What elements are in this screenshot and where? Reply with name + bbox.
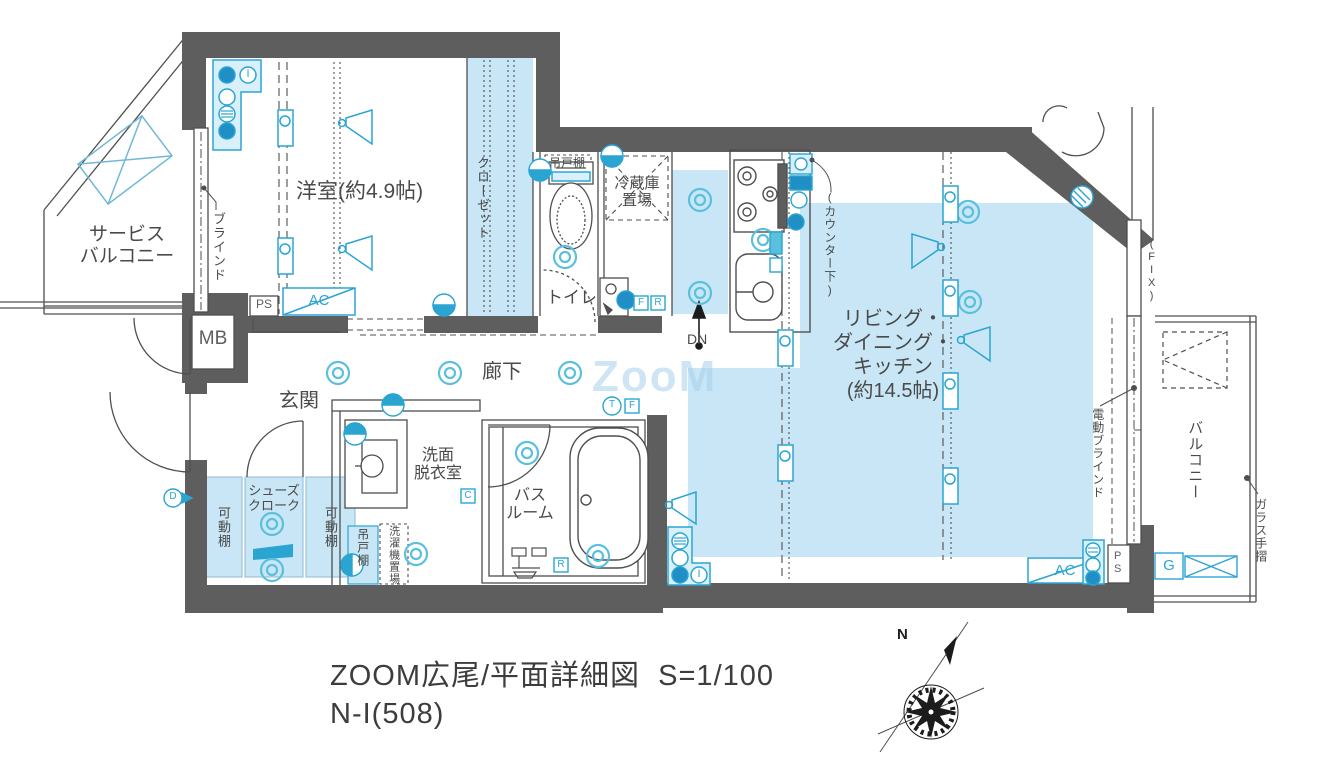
label-ac-top: AC bbox=[283, 292, 355, 309]
icon-letter-r-bath: R bbox=[554, 559, 568, 571]
room-label-bathroom: バス ルーム bbox=[496, 487, 564, 524]
icon-letter-c-bath: C bbox=[461, 490, 475, 502]
icon-letter-t-corridor: T bbox=[605, 399, 619, 411]
north-label: N bbox=[897, 626, 908, 643]
label-electric-blind: 電動ブラインド bbox=[1090, 408, 1104, 499]
label-fix-window: (FIX) bbox=[1145, 238, 1158, 303]
room-label-western: 洋室(約4.9帖) bbox=[296, 180, 423, 204]
label-ps-top: PS bbox=[250, 298, 278, 312]
drawing-title: ZOOM広尾/平面詳細図 S=1/100 bbox=[330, 660, 774, 693]
icon-letter-f-corridor: F bbox=[625, 400, 639, 412]
label-movable-shelf-right: 可動棚 bbox=[322, 506, 337, 548]
room-label-balcony: バルコニー bbox=[1186, 420, 1203, 500]
icon-letter-f-toilet: F bbox=[634, 297, 648, 309]
label-dn: DN bbox=[687, 331, 707, 347]
shower-fixture bbox=[512, 548, 546, 578]
label-ps-bottom: PS bbox=[1111, 550, 1124, 576]
icon-letter-i-top: I bbox=[241, 68, 255, 81]
icon-letter-r-toilet: R bbox=[651, 297, 665, 309]
service-balcony-outline bbox=[0, 36, 190, 314]
room-label-washroom: 洗面 脱衣室 bbox=[402, 447, 474, 484]
label-washer-space: 洗濯機置場 bbox=[387, 525, 400, 585]
watermark: ZooM bbox=[592, 352, 717, 402]
icon-letter-g-right: G bbox=[1155, 557, 1183, 574]
evacuation-hatch-icon bbox=[1163, 332, 1227, 388]
floor-plan-page: ZooM 洋室(約4.9帖) クローゼット サービス バルコニー トイレ 廊下 … bbox=[0, 0, 1331, 771]
room-label-ldk: リビング・ ダイニング・ キッチン (約14.5帖) bbox=[818, 307, 968, 403]
room-label-entrance: 玄関 bbox=[279, 390, 319, 413]
room-label-corridor: 廊下 bbox=[482, 361, 522, 384]
label-ac-bottom: AC bbox=[1028, 562, 1102, 579]
drawing-number: N-I(508) bbox=[330, 698, 444, 731]
room-label-service-balcony: サービス バルコニー bbox=[62, 224, 192, 268]
label-counter-under: (カウンター下) bbox=[822, 190, 836, 298]
label-hanging-cupboard-toilet: 吊戸棚 bbox=[549, 157, 585, 171]
label-ps-corner: PS bbox=[198, 84, 208, 106]
label-blind: ブラインド bbox=[210, 212, 225, 282]
compass-rose bbox=[878, 622, 984, 752]
label-movable-shelf-left: 可動棚 bbox=[215, 506, 230, 548]
label-refrigerator: 冷蔵庫 置場 bbox=[606, 175, 668, 210]
bathtub-fixture bbox=[570, 428, 648, 568]
room-label-toilet: トイレ bbox=[546, 288, 597, 308]
label-mb: MB bbox=[192, 328, 234, 350]
hatch-box-icon bbox=[78, 116, 172, 204]
icon-letter-i-bottom: I bbox=[692, 568, 706, 581]
label-glass-handrail: ガラス手摺 bbox=[1253, 498, 1267, 563]
label-hanging-cupboard-bottom: 吊戸棚 bbox=[355, 528, 369, 567]
icon-letter-d-left: D bbox=[166, 491, 180, 503]
room-label-shoes-closet: シューズ クローク bbox=[243, 484, 305, 514]
room-label-closet: クローゼット bbox=[474, 156, 489, 240]
